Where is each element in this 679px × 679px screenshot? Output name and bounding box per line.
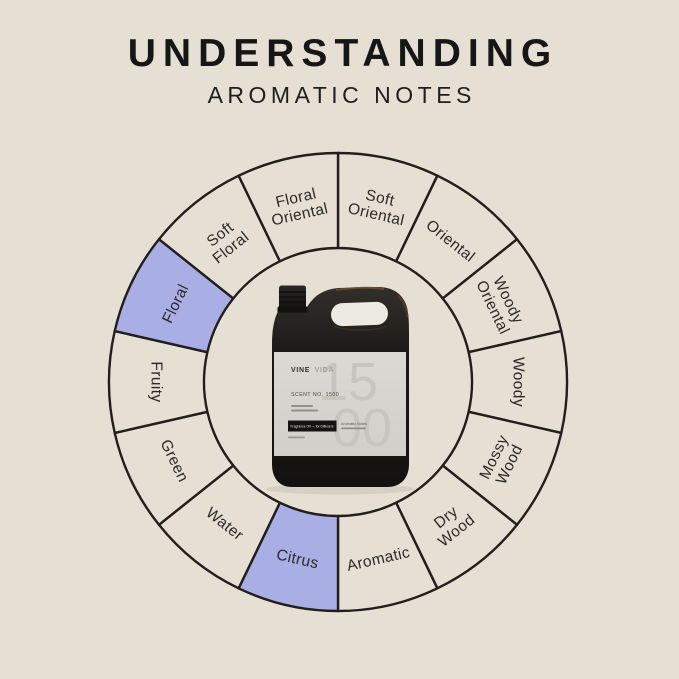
label-bar-text: Fragrance Oil — for Diffusers xyxy=(291,425,334,429)
label-aside-microtext xyxy=(341,428,366,430)
aroma-wheel-diagram: SoftOrientalOrientalWoodyOrientalWoodyMo… xyxy=(0,0,679,679)
label-aside-text: Aromatic Notes xyxy=(341,422,367,426)
wheel-label-woody: Woody xyxy=(510,357,527,407)
label-brand-light: VIDA xyxy=(315,367,335,374)
cap-collar xyxy=(278,307,308,313)
product-bottle: 15 00 VINE VIDA SCENT NO. 1500 Fragrance… xyxy=(266,286,414,495)
label-scent-number: SCENT NO. 1500 xyxy=(291,392,339,398)
label-brand-bold: VINE xyxy=(291,367,310,374)
infographic-canvas: UNDERSTANDING AROMATIC NOTES SoftOrienta… xyxy=(0,0,679,679)
wheel-label-fruity: Fruity xyxy=(148,361,165,402)
label-bottom-microtext xyxy=(288,437,305,439)
label-microtext-line xyxy=(291,410,318,412)
bottle-handle-hole xyxy=(331,302,389,327)
label-microtext-line xyxy=(291,405,313,407)
